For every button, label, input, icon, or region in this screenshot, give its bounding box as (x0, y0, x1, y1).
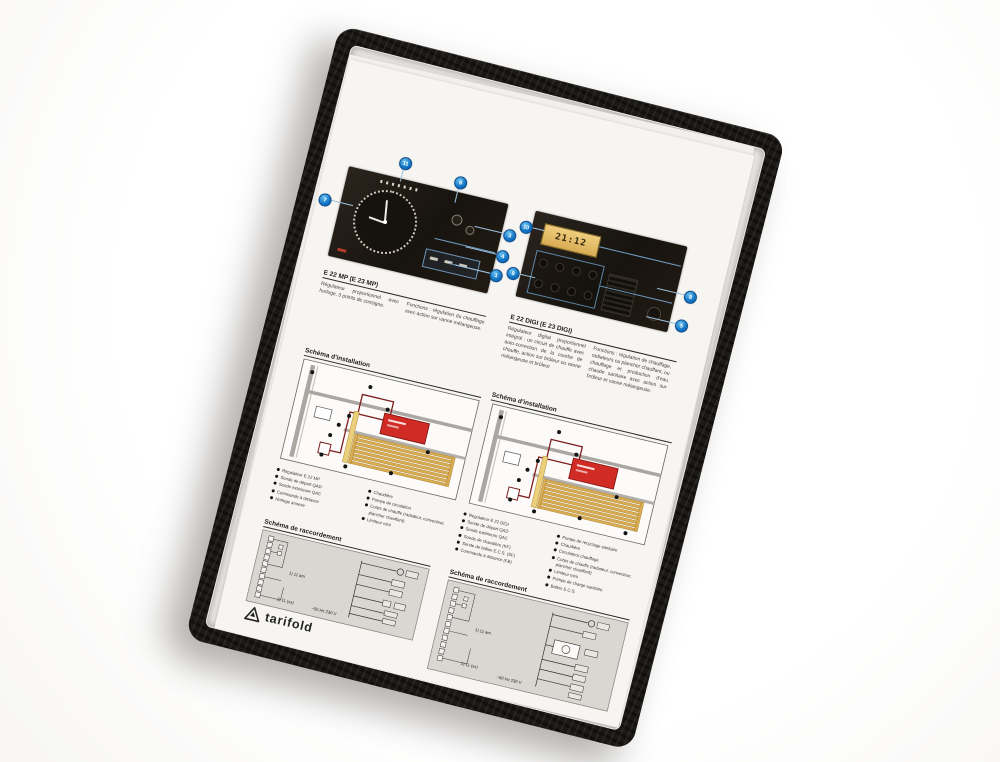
callout-4: 4 (495, 249, 511, 265)
pump-box (318, 442, 331, 455)
button-grid (527, 250, 605, 309)
callout-11: 11 (398, 156, 414, 172)
product-photo-scene: 21:12 7 11 (0, 0, 1000, 762)
callout-7: 7 (317, 192, 333, 208)
tarifold-triangle-icon (243, 604, 263, 624)
setpoint-knob (450, 213, 463, 226)
display-pocket-frame: 21:12 7 11 (185, 25, 786, 751)
timer-dial (347, 183, 424, 260)
pocket-window: 21:12 7 11 (204, 44, 766, 731)
callout-6: 6 (453, 175, 469, 191)
callout-5: 5 (674, 318, 690, 334)
installation-panel-left: Schéma d'installation (269, 347, 483, 544)
callout-8: 8 (683, 289, 699, 305)
vent-grille (600, 273, 638, 317)
dial-minute-hand (384, 200, 388, 223)
document-sheet: 21:12 7 11 (214, 59, 755, 727)
callout-3: 3 (502, 228, 518, 244)
brand-mark (337, 248, 346, 253)
dial-hour-hand (369, 216, 386, 224)
callout-line (599, 246, 681, 266)
regulator-photo-analog (328, 166, 509, 294)
callout-1: 1 (488, 268, 504, 284)
